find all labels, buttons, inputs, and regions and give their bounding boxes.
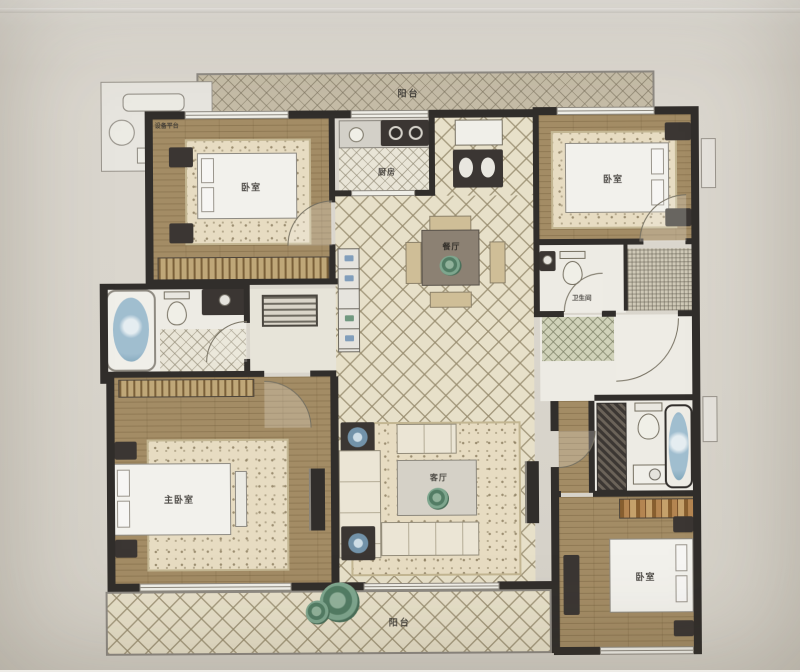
bathtub-water (113, 298, 149, 362)
floorplan: 阳台 设备平台 阳台 卧室 厨房 卧室 (0, 0, 800, 672)
shoe-cabinet-louver (262, 295, 318, 327)
living-room-label: 客厅 (430, 472, 448, 483)
master-pillow (117, 501, 130, 528)
sofa-long (381, 522, 479, 557)
wall (551, 467, 560, 653)
ac-platform (702, 396, 717, 442)
bathroom-left-vanity (202, 289, 248, 315)
wash-basin (543, 255, 553, 265)
wall (244, 285, 250, 323)
wall (533, 245, 539, 315)
bedroom-top-right-pillow (651, 148, 664, 174)
ac-platform (701, 138, 716, 188)
wall (593, 490, 701, 497)
master-wardrobe (118, 379, 254, 398)
balcony-top-label: 阳台 (397, 86, 419, 99)
kitchen-sink (349, 127, 364, 142)
bedroom-bottom-right-label: 卧室 (635, 570, 655, 583)
wall (594, 394, 700, 401)
window (351, 110, 429, 118)
coffee-table-plant (427, 488, 449, 510)
cabinet-handle (345, 255, 354, 261)
master-bedroom-label: 主卧室 (164, 493, 194, 506)
storage-cabinet (627, 248, 691, 310)
wall (100, 283, 250, 290)
dining-chair (489, 241, 505, 283)
master-tv-cabinet (309, 468, 325, 530)
bathroom-right-vanity (539, 251, 555, 271)
cabinet-handle (345, 315, 354, 321)
sink-basin (481, 157, 495, 177)
wash-basin (219, 294, 231, 306)
balcony-bottom-label: 阳台 (389, 615, 411, 628)
master-pillow (117, 470, 130, 497)
living-tv-cabinet (525, 461, 539, 523)
cabinet-handle (345, 275, 354, 281)
nightstand (665, 122, 691, 140)
wall (602, 311, 616, 317)
kitchen-label: 厨房 (378, 167, 396, 178)
wall (685, 238, 699, 244)
nightstand (169, 223, 193, 243)
dining-chair (430, 292, 472, 308)
bedroom-top-left-pillow (201, 187, 214, 212)
stove-burner (389, 126, 403, 140)
dining-centerpiece (440, 256, 462, 276)
bathtub-water (668, 412, 688, 480)
dining-room-label: 餐厅 (442, 241, 460, 252)
window (140, 583, 292, 592)
hall-cabinet (337, 248, 360, 352)
bedroom-bottom-cabinet (563, 555, 579, 615)
wall (106, 371, 264, 378)
toilet-tank (164, 291, 190, 299)
bedroom-top-right-label: 卧室 (603, 172, 623, 185)
wall (533, 113, 540, 245)
wall (429, 118, 435, 196)
equipment-drum (109, 120, 135, 146)
equipment-platform-label: 设备平台 (155, 121, 179, 130)
wall (330, 376, 339, 582)
bedroom-bottom-pillow (675, 544, 687, 571)
nightstand (169, 147, 193, 167)
wall (106, 378, 115, 592)
wall (498, 581, 554, 589)
bed-bench (235, 471, 247, 527)
bathroom-right-label: 卫生间 (572, 292, 592, 302)
wall (550, 401, 558, 431)
nightstand (674, 620, 694, 636)
side-table-plant (348, 533, 368, 553)
bedroom-top-left-pillow (201, 158, 214, 183)
nightstand (115, 442, 137, 460)
window (600, 646, 694, 655)
nightstand (673, 516, 693, 532)
window (557, 106, 655, 115)
toilet-tank (634, 402, 662, 411)
sink-basin (459, 158, 473, 178)
wall (534, 311, 564, 317)
balcony-plant-small (306, 600, 330, 624)
nightstand (115, 540, 137, 558)
dining-chair (405, 242, 421, 284)
stove-burner (409, 126, 423, 140)
wall (623, 245, 627, 311)
toilet (167, 301, 187, 325)
toilet (637, 413, 659, 439)
window (185, 111, 289, 120)
cabinet-handle (345, 335, 354, 341)
shower-screen (596, 403, 627, 491)
kitchen-sliding-door (351, 190, 415, 196)
fridge (455, 119, 503, 145)
sofa-two-seat (397, 424, 457, 454)
wall (100, 284, 109, 384)
side-table-plant (348, 427, 368, 447)
bedroom-bottom-pillow (675, 575, 687, 602)
toilet-tank (559, 251, 585, 259)
wall (145, 112, 154, 290)
wash-basin (649, 468, 661, 480)
floorplan-photo: { "rooms": { "balcony_top": {"label": "阳… (0, 0, 800, 670)
bedroom-top-left-label: 卧室 (241, 180, 261, 193)
equipment-box (123, 93, 185, 111)
sliding-door (364, 582, 500, 590)
entry-doormat (542, 317, 614, 361)
wall (678, 310, 700, 316)
